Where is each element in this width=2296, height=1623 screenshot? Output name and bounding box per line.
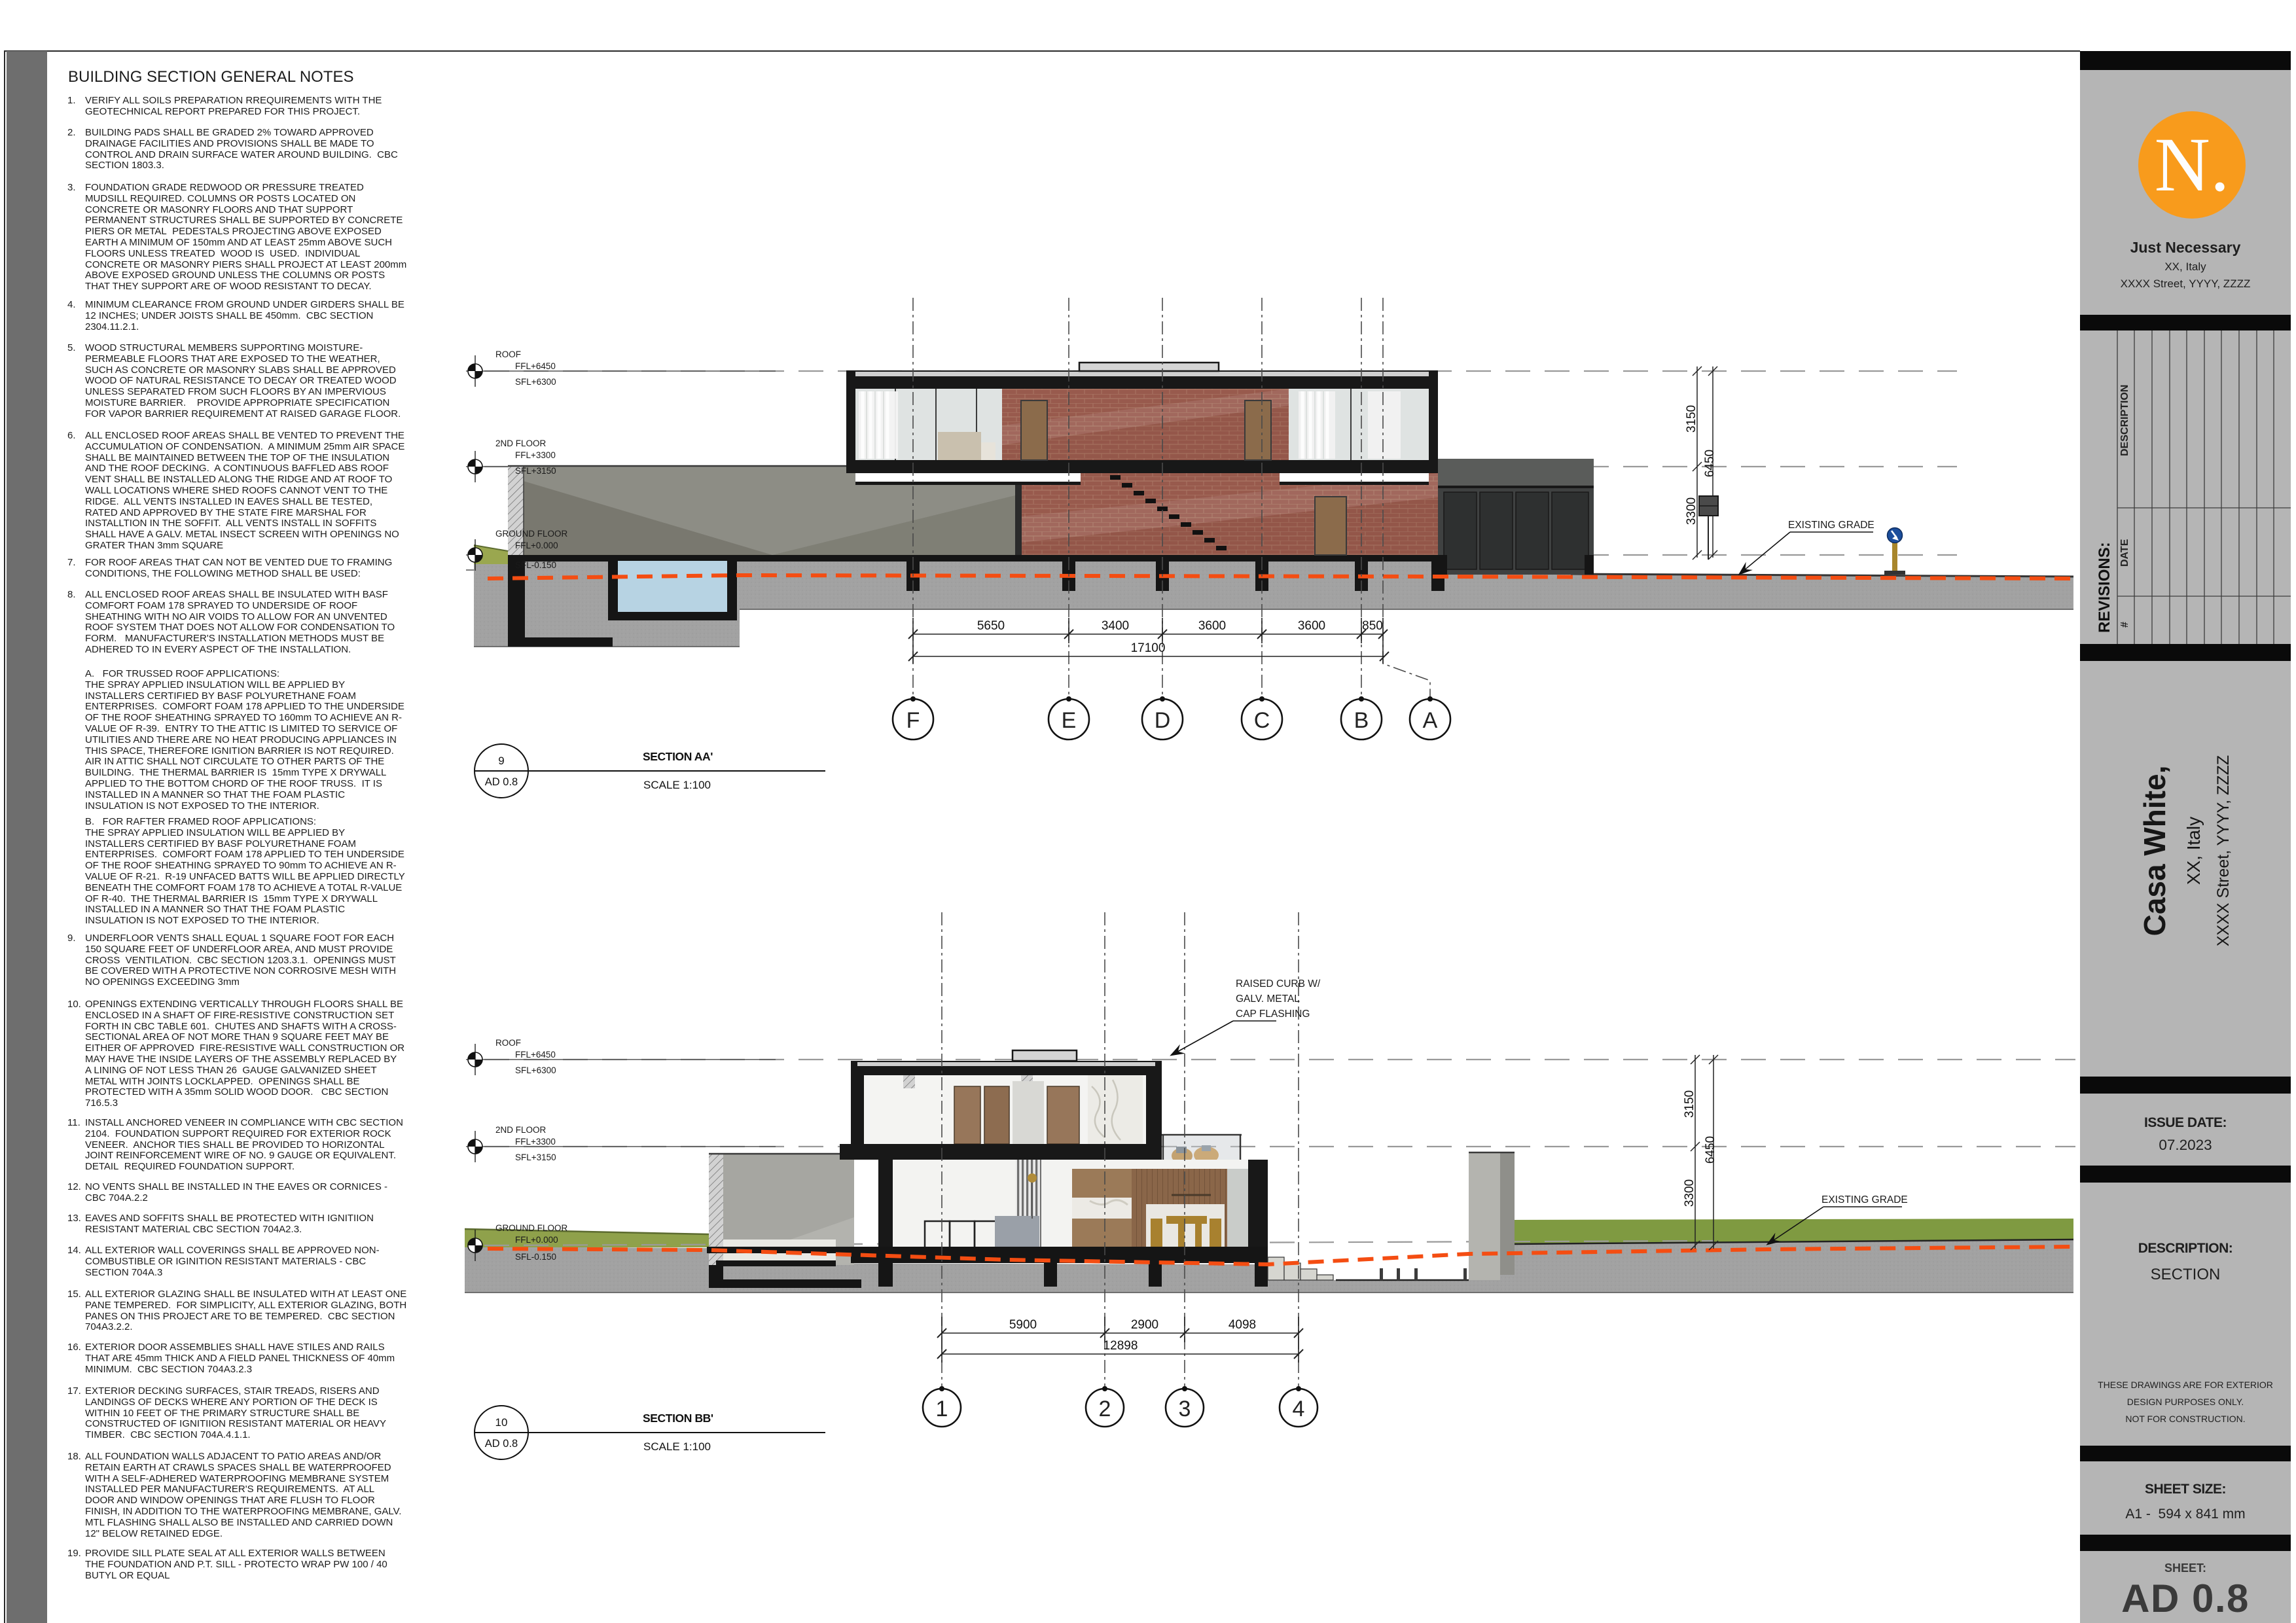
svg-text:5900: 5900 (1009, 1318, 1037, 1332)
svg-text:FFL+0.000: FFL+0.000 (515, 541, 558, 550)
svg-text:2900: 2900 (1131, 1318, 1158, 1332)
svg-text:SFL+6300: SFL+6300 (515, 1065, 556, 1075)
svg-text:17100: 17100 (1131, 641, 1166, 655)
svg-text:AD 0.8: AD 0.8 (485, 776, 518, 788)
svg-text:FFL+6450: FFL+6450 (515, 1050, 556, 1060)
svg-text:FFL+0.000: FFL+0.000 (515, 1235, 558, 1245)
svg-text:2ND FLOOR: 2ND FLOOR (495, 1125, 547, 1135)
svg-text:AD 0.8: AD 0.8 (485, 1438, 518, 1450)
svg-text:850: 850 (1362, 619, 1383, 633)
svg-text:F: F (906, 708, 920, 733)
svg-text:6450: 6450 (1703, 450, 1717, 477)
svg-text:FFL+3300: FFL+3300 (515, 1137, 556, 1147)
svg-text:RAISED CURB W/: RAISED CURB W/ (1236, 978, 1321, 990)
svg-text:4098: 4098 (1229, 1318, 1256, 1332)
svg-text:2ND FLOOR: 2ND FLOOR (495, 438, 547, 448)
svg-text:FFL+6450: FFL+6450 (515, 361, 556, 371)
svg-text:3150: 3150 (1683, 1090, 1696, 1118)
svg-text:SCALE 1:100: SCALE 1:100 (643, 779, 711, 791)
svg-text:E: E (1062, 708, 1077, 733)
svg-text:SFL-0.150: SFL-0.150 (515, 1252, 556, 1262)
svg-text:2: 2 (1099, 1397, 1111, 1421)
svg-text:SCALE 1:100: SCALE 1:100 (643, 1440, 711, 1453)
svg-text:SECTION BB': SECTION BB' (643, 1412, 713, 1425)
svg-text:ROOF: ROOF (495, 349, 521, 359)
svg-text:SFL+6300: SFL+6300 (515, 377, 556, 387)
svg-text:GROUND FLOOR: GROUND FLOOR (495, 529, 568, 539)
svg-text:SFL-0.150: SFL-0.150 (515, 560, 556, 570)
svg-text:GROUND FLOOR: GROUND FLOOR (495, 1223, 568, 1233)
svg-text:5650: 5650 (977, 619, 1005, 633)
svg-text:A: A (1423, 708, 1438, 733)
svg-text:C: C (1254, 708, 1270, 733)
svg-text:3600: 3600 (1198, 619, 1226, 633)
svg-text:3300: 3300 (1685, 497, 1698, 525)
svg-text:1: 1 (936, 1397, 948, 1421)
svg-text:GALV. METAL: GALV. METAL (1236, 993, 1300, 1005)
svg-text:10: 10 (495, 1416, 508, 1429)
svg-text:6450: 6450 (1704, 1136, 1717, 1164)
svg-text:4: 4 (1293, 1397, 1305, 1421)
svg-text:EXISTING GRADE: EXISTING GRADE (1821, 1194, 1908, 1205)
svg-text:EXISTING GRADE: EXISTING GRADE (1788, 520, 1874, 531)
svg-text:3600: 3600 (1298, 619, 1325, 633)
svg-text:ROOF: ROOF (495, 1038, 521, 1048)
svg-text:3: 3 (1179, 1397, 1191, 1421)
svg-text:SECTION AA': SECTION AA' (643, 750, 713, 763)
svg-text:SFL+3150: SFL+3150 (515, 1152, 556, 1162)
svg-text:3150: 3150 (1685, 405, 1698, 433)
svg-text:D: D (1155, 708, 1171, 733)
svg-text:B: B (1354, 708, 1369, 733)
svg-text:3300: 3300 (1683, 1179, 1696, 1207)
svg-text:9: 9 (498, 755, 504, 767)
svg-text:3400: 3400 (1102, 619, 1129, 633)
svg-text:CAP FLASHING: CAP FLASHING (1236, 1008, 1310, 1020)
svg-text:SFL+3150: SFL+3150 (515, 466, 556, 476)
svg-text:FFL+3300: FFL+3300 (515, 450, 556, 460)
svg-text:12898: 12898 (1103, 1339, 1138, 1353)
